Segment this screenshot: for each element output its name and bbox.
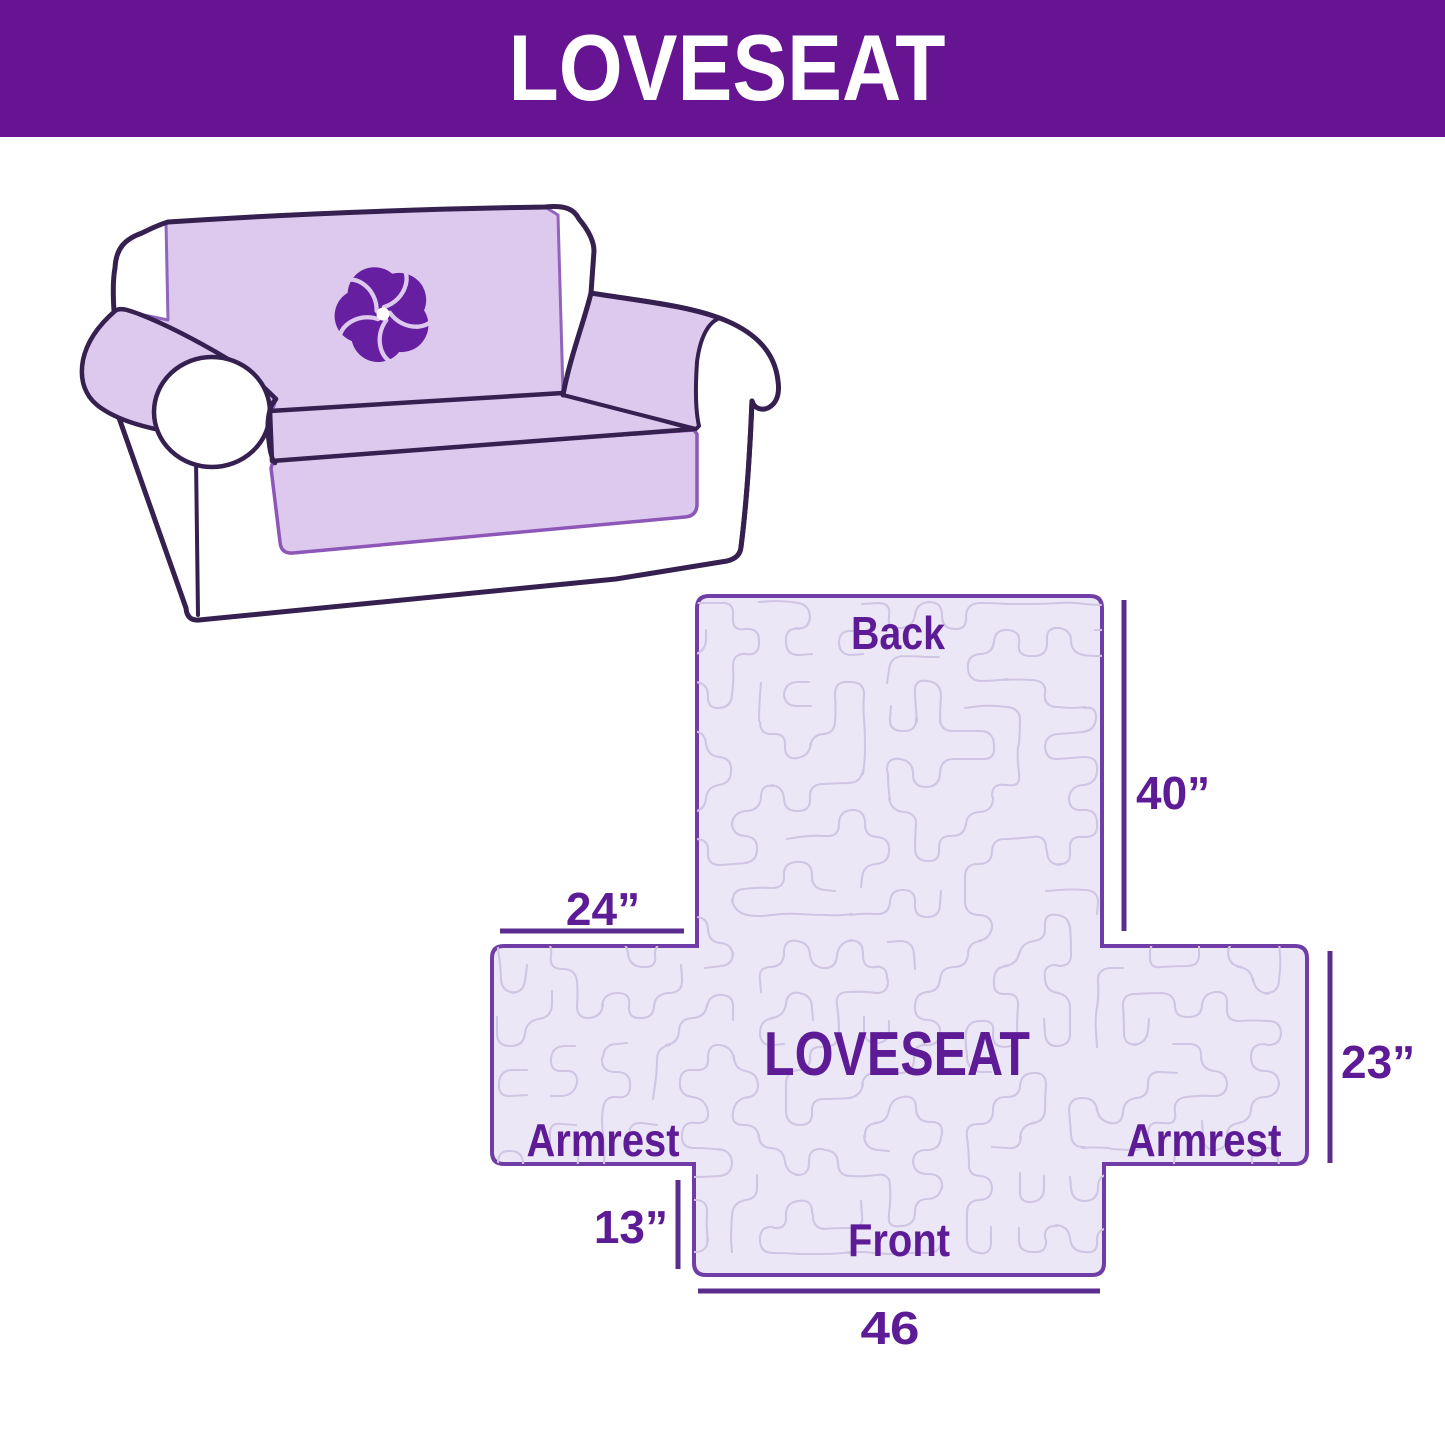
svg-text:13”: 13”	[594, 1201, 668, 1253]
svg-text:Front: Front	[848, 1214, 950, 1266]
svg-text:40”: 40”	[1136, 767, 1210, 819]
svg-text:Armrest: Armrest	[527, 1114, 680, 1166]
svg-text:46: 46	[861, 1302, 920, 1354]
svg-text:23”: 23”	[1341, 1036, 1415, 1088]
svg-text:24”: 24”	[566, 883, 640, 935]
svg-text:Back: Back	[851, 607, 945, 659]
svg-text:Armrest: Armrest	[1127, 1114, 1282, 1166]
svg-text:LOVESEAT: LOVESEAT	[764, 1020, 1030, 1089]
svg-text:LOVESEAT: LOVESEAT	[509, 15, 946, 120]
